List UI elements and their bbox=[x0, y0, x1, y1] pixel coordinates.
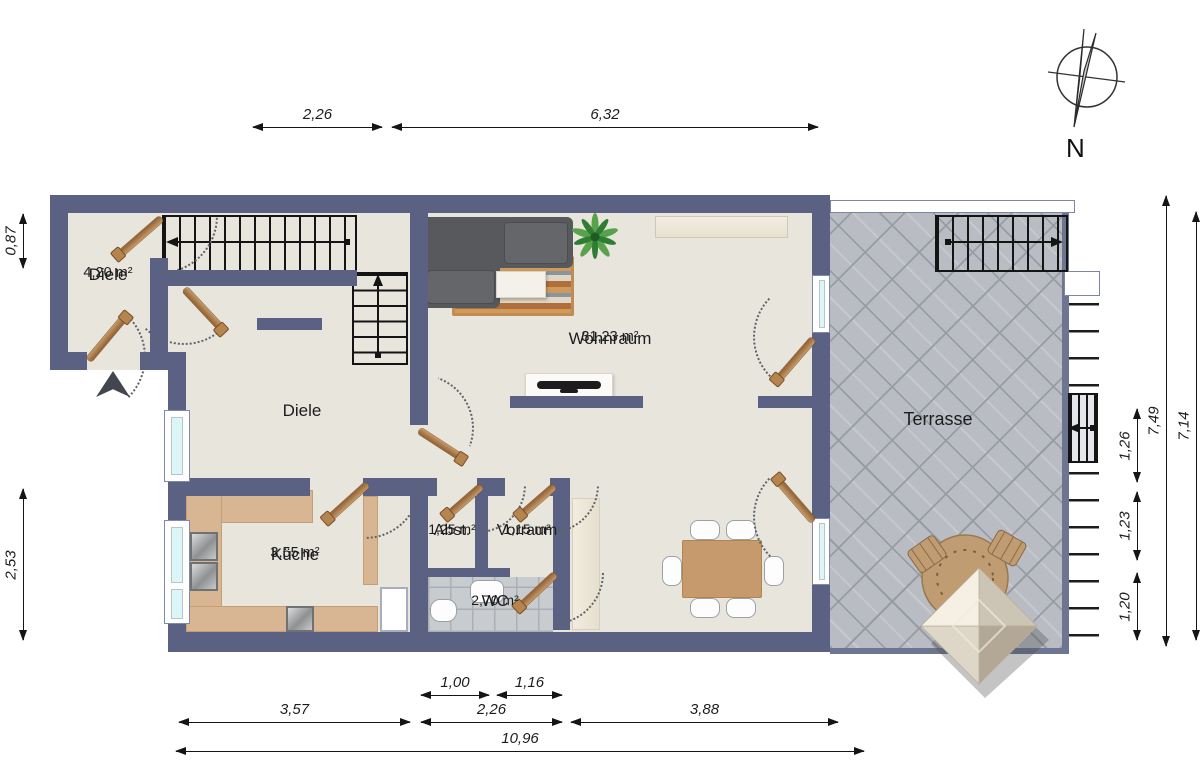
room-area: 1,25 m² bbox=[428, 521, 475, 539]
chair bbox=[662, 556, 682, 586]
railing-hatch-lower bbox=[1069, 472, 1099, 652]
half-wall bbox=[510, 396, 643, 408]
sofa-cushion bbox=[427, 270, 495, 304]
dimension-bottom-m2: 2,26 bbox=[421, 722, 562, 723]
stair-arrow bbox=[377, 280, 379, 356]
room-area: 2,70 m² bbox=[471, 592, 518, 610]
tv-stand bbox=[560, 389, 578, 393]
dimension-value: 3,88 bbox=[690, 701, 719, 718]
toilet-icon bbox=[430, 599, 457, 622]
dining-table bbox=[682, 540, 762, 598]
dimension-right-outer: 7,49 bbox=[1166, 196, 1167, 646]
stair-arrow-head bbox=[373, 274, 383, 286]
dimension-value: 1,16 bbox=[515, 674, 544, 691]
stair-arrow-dot bbox=[945, 239, 951, 245]
dimension-right-inner: 7,14 bbox=[1196, 212, 1197, 640]
dimension-value: 2,26 bbox=[477, 701, 506, 718]
dimension-value: 7,49 bbox=[1146, 406, 1163, 435]
stair-arrow-dot bbox=[344, 239, 350, 245]
sink-unit-icon bbox=[286, 606, 314, 632]
stair-arrow bbox=[947, 241, 1057, 243]
room-area: 3,55 m² bbox=[270, 544, 319, 562]
dimension-value: 10,96 bbox=[501, 730, 539, 747]
dimension-right-s1: 1,26 bbox=[1137, 409, 1138, 482]
dimension-bottom-m3: 3,88 bbox=[571, 722, 838, 723]
half-wall bbox=[758, 396, 812, 408]
dimension-left-2: 2,53 bbox=[23, 489, 24, 640]
room-name: Terrasse bbox=[903, 408, 972, 431]
dimension-value: 6,32 bbox=[590, 106, 619, 123]
chair bbox=[726, 598, 756, 618]
compass-north-label: N bbox=[1066, 133, 1085, 163]
dimension-value: 0,87 bbox=[3, 226, 20, 255]
dimension-value: 1,23 bbox=[1117, 511, 1134, 540]
stove-icon bbox=[190, 532, 218, 561]
dimension-value: 2,53 bbox=[3, 550, 20, 579]
kitchen-counter-bottom bbox=[186, 606, 378, 632]
stair-arrow-dot bbox=[1090, 425, 1096, 431]
room-name: Diele bbox=[283, 400, 322, 421]
half-wall bbox=[257, 318, 322, 330]
wall-segment bbox=[812, 585, 830, 652]
railing-hatch-upper bbox=[1069, 303, 1099, 389]
wall-segment bbox=[168, 352, 186, 412]
fridge bbox=[380, 587, 408, 632]
wall-segment bbox=[812, 195, 830, 275]
oven-icon bbox=[190, 562, 218, 591]
stair-arrow-head bbox=[1068, 423, 1080, 433]
dimension-top-1: 2,26 bbox=[253, 127, 382, 128]
room-area: 31,23 m² bbox=[581, 328, 638, 346]
terrace-step-box bbox=[1064, 271, 1100, 296]
tv-icon bbox=[537, 381, 601, 389]
dimension-value: 1,20 bbox=[1117, 592, 1134, 621]
coffee-table bbox=[496, 271, 546, 298]
dimension-top-2: 6,32 bbox=[392, 127, 818, 128]
dimension-value: 7,14 bbox=[1176, 411, 1193, 440]
dimension-value: 3,57 bbox=[280, 701, 309, 718]
plant-icon bbox=[570, 212, 620, 262]
dimension-right-s3: 1,20 bbox=[1137, 573, 1138, 640]
dimension-bottom-m1: 3,57 bbox=[179, 722, 410, 723]
dimension-value: 2,26 bbox=[303, 106, 332, 123]
dimension-left-1: 0,87 bbox=[23, 214, 24, 268]
parasol-icon bbox=[893, 528, 1063, 698]
chair bbox=[690, 520, 720, 540]
chair bbox=[726, 520, 756, 540]
window-glass bbox=[171, 589, 183, 619]
compass-rose: N bbox=[1030, 25, 1160, 175]
floor-plan: Diele 4,20 m² Diele Wohnraum 31,23 m² Kü… bbox=[0, 0, 1200, 777]
dimension-value: 1,26 bbox=[1117, 431, 1134, 460]
room-area: 4,20 m² bbox=[83, 264, 132, 282]
sofa-cushion bbox=[504, 222, 568, 264]
sideboard bbox=[655, 216, 788, 238]
chair bbox=[690, 598, 720, 618]
terrace-railing bbox=[830, 200, 1075, 213]
dimension-bottom-s1: 1,00 bbox=[421, 695, 489, 696]
wall-segment bbox=[410, 568, 510, 577]
window-glass bbox=[171, 527, 183, 583]
dimension-right-s2: 1,23 bbox=[1137, 492, 1138, 560]
terrace-staircase bbox=[935, 215, 1068, 272]
wall-segment bbox=[168, 632, 830, 652]
stair-arrow-dot bbox=[375, 352, 381, 358]
room-area: 1,15 m² bbox=[503, 521, 550, 539]
window-glass bbox=[171, 417, 183, 475]
dimension-bottom-total: 10,96 bbox=[176, 751, 864, 752]
dimension-value: 1,00 bbox=[440, 674, 469, 691]
dimension-bottom-s2: 1,16 bbox=[497, 695, 562, 696]
stair-arrow-head bbox=[1051, 237, 1063, 247]
